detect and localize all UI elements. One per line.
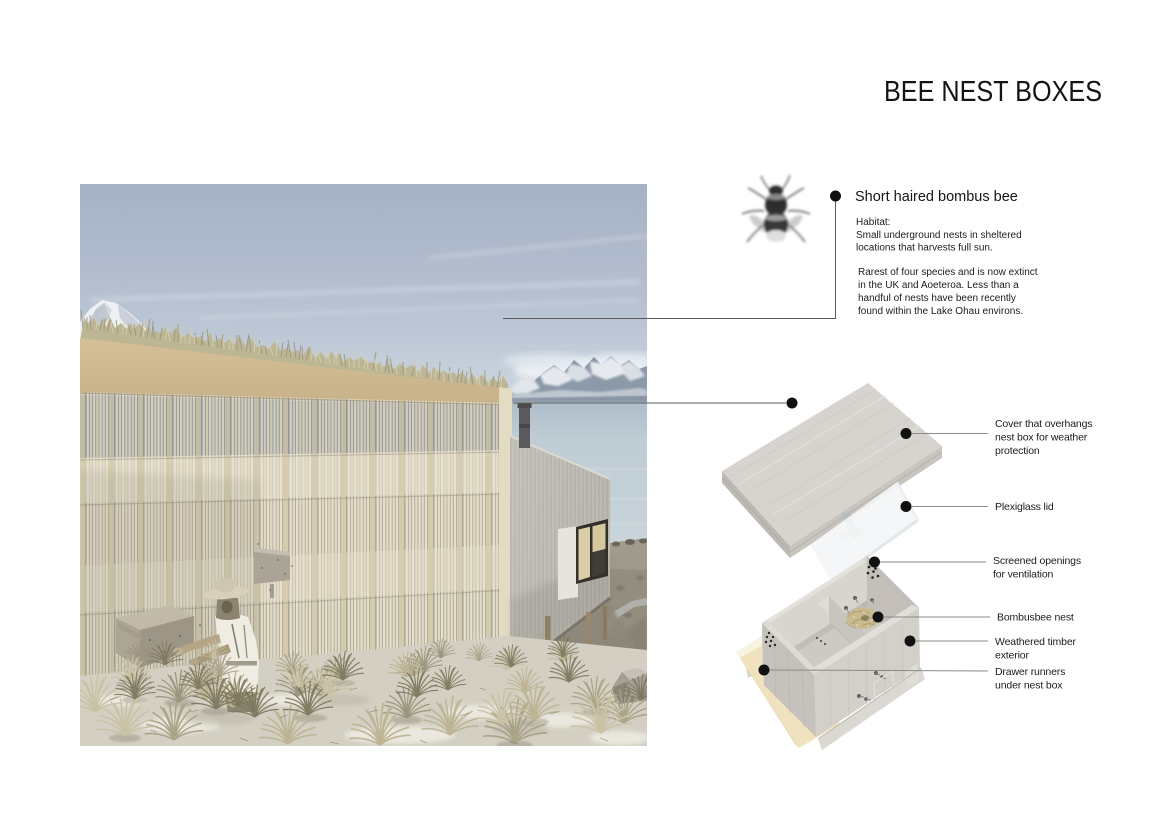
svg-text:under nest box: under nest box	[995, 680, 1063, 692]
svg-text:handful of nests have been rec: handful of nests have been recently	[858, 293, 1016, 304]
svg-text:found within the Lake Ohau env: found within the Lake Ohau environs.	[858, 306, 1023, 317]
svg-text:protection: protection	[995, 445, 1040, 457]
svg-text:Bombusbee nest: Bombusbee nest	[997, 612, 1074, 624]
svg-text:BEE NEST BOXES: BEE NEST BOXES	[884, 76, 1102, 108]
svg-text:Drawer runners: Drawer runners	[995, 666, 1065, 678]
svg-text:Small underground nests in she: Small underground nests in sheltered	[856, 230, 1022, 241]
svg-text:Weathered timber: Weathered timber	[995, 636, 1077, 648]
svg-text:Cover that overhangs: Cover that overhangs	[995, 418, 1092, 430]
svg-text:nest box for weather: nest box for weather	[995, 432, 1088, 444]
svg-text:Rarest of four species and is: Rarest of four species and is now extinc…	[858, 267, 1038, 278]
svg-text:in the UK and Aoeteroa. Less t: in the UK and Aoeteroa. Less than a	[858, 280, 1019, 291]
svg-text:Screened openings: Screened openings	[993, 555, 1081, 567]
svg-text:Plexiglass lid: Plexiglass lid	[995, 501, 1054, 513]
svg-text:locations that harvests full s: locations that harvests full sun.	[856, 243, 993, 254]
svg-text:Habitat:: Habitat:	[856, 217, 890, 228]
svg-text:for ventilation: for ventilation	[993, 569, 1054, 581]
svg-text:Short haired bombus bee: Short haired bombus bee	[855, 189, 1018, 205]
svg-text:exterior: exterior	[995, 650, 1029, 662]
